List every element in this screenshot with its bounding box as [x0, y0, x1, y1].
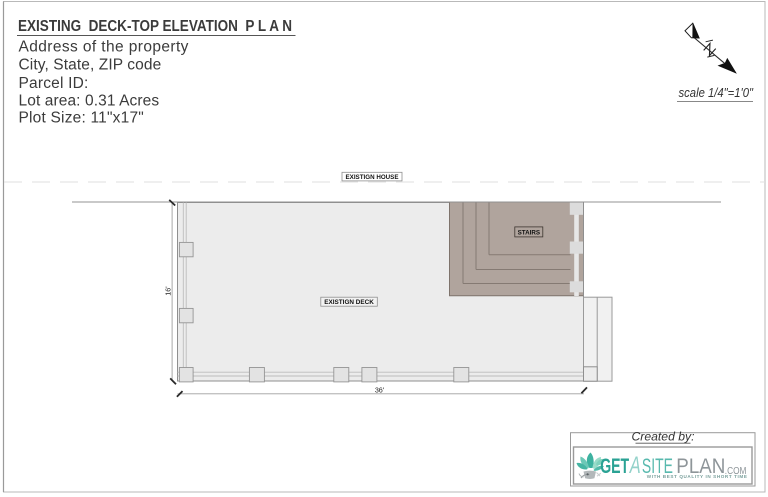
svg-text:Plot Size: 11"x17": Plot Size: 11"x17"	[19, 110, 144, 127]
svg-text:36': 36'	[375, 386, 385, 395]
svg-text:Lot area: 0.31 Acres: Lot area: 0.31 Acres	[19, 93, 160, 110]
svg-text:Address of the property: Address of the property	[19, 39, 189, 56]
svg-text:EXISTIGN DECK: EXISTIGN DECK	[324, 299, 374, 306]
svg-text:Parcel ID:: Parcel ID:	[19, 75, 89, 92]
svg-text:Created by:: Created by:	[631, 430, 694, 444]
svg-text:A: A	[628, 452, 641, 479]
svg-text:16': 16'	[164, 286, 173, 296]
svg-text:scale 1/4"=1'0": scale 1/4"=1'0"	[679, 86, 754, 100]
svg-text:GET: GET	[600, 454, 629, 477]
svg-text:City, State, ZIP code: City, State, ZIP code	[19, 57, 162, 74]
svg-text:EXISTIGN HOUSE: EXISTIGN HOUSE	[346, 174, 400, 181]
svg-text:STAIRS: STAIRS	[518, 230, 541, 237]
svg-text:EXISTING DECK-TOP ELEVATION: EXISTING DECK-TOP ELEVATION P L A N	[18, 18, 292, 35]
svg-text:WITH BEST QUALITY IN SHORT TIM: WITH BEST QUALITY IN SHORT TIME	[647, 474, 748, 479]
